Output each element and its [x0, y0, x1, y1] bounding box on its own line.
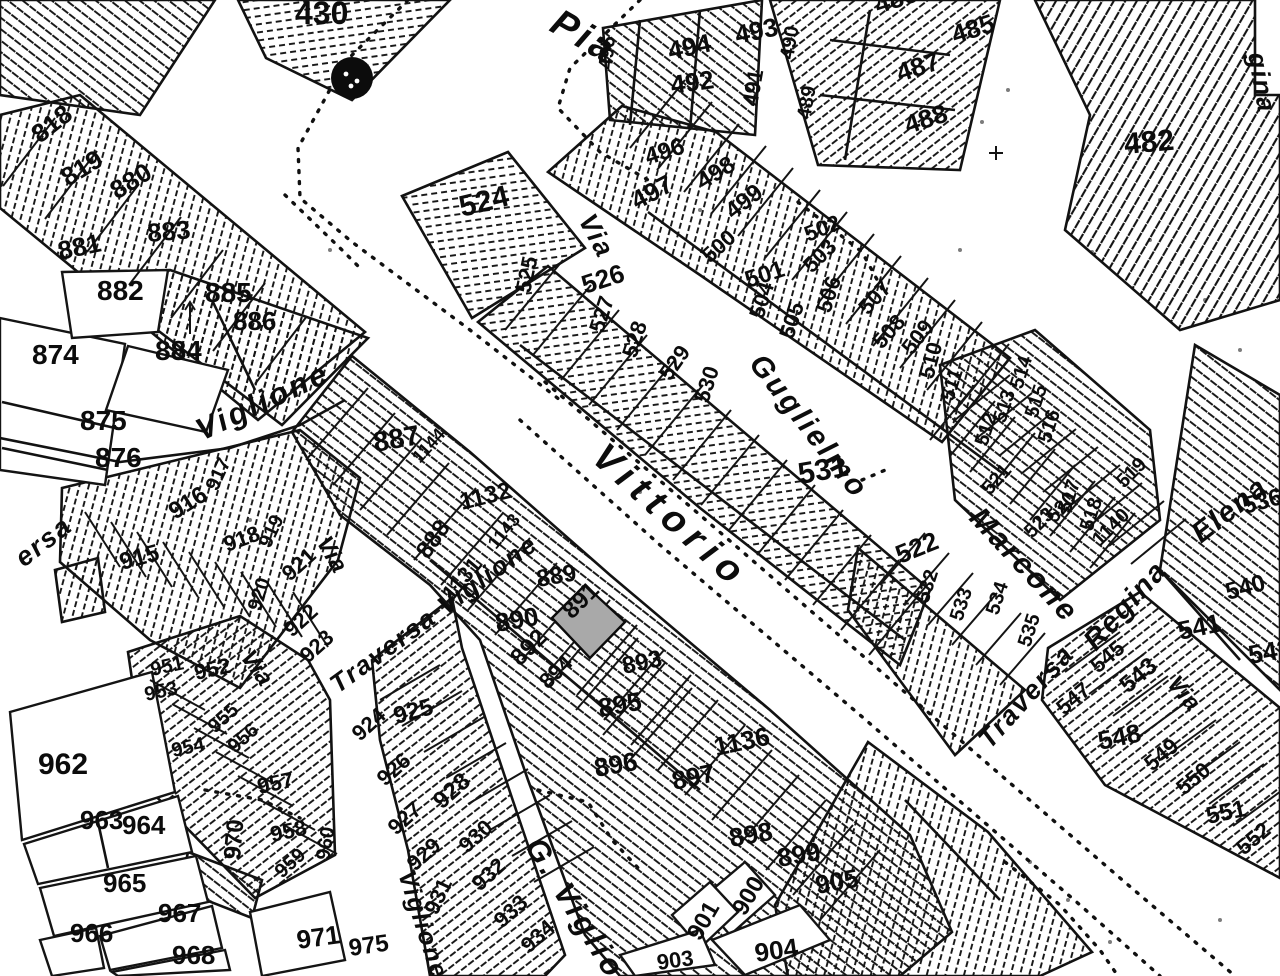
cross-mark-icon	[989, 146, 1003, 160]
parcel-label-962: 962	[38, 748, 88, 781]
paper-speck	[468, 698, 472, 702]
paper-speck	[1066, 898, 1070, 902]
parcel-label-963: 963	[80, 805, 123, 835]
paper-speck	[958, 248, 962, 252]
parcel-label-967: 967	[158, 898, 201, 928]
parcel-label-875: 875	[80, 405, 127, 436]
parcel-label-886: 886	[233, 306, 276, 336]
paper-speck	[1148, 238, 1152, 242]
map-canvas: 4308188198808818838828858868848748758764…	[0, 0, 1280, 976]
parcel-label-882: 882	[97, 275, 144, 306]
dotted-line	[285, 195, 360, 268]
paper-speck	[980, 120, 984, 124]
parcel-label-541: 541	[1175, 608, 1224, 646]
cadastral-map-page: 4308188198808818838828858868848748758764…	[0, 0, 1280, 976]
parcel-label-876: 876	[95, 442, 142, 473]
paper-speck	[1090, 250, 1094, 254]
parcel-label-903: 903	[655, 945, 695, 975]
tree-symbol-texture	[344, 72, 349, 77]
paper-speck	[1006, 88, 1010, 92]
parcel-label-966: 966	[70, 918, 113, 948]
hatched-parcel-block	[0, 0, 215, 115]
parcel-label-874: 874	[32, 339, 79, 370]
parcel-label-532: 532	[912, 567, 943, 606]
paper-speck	[1238, 348, 1242, 352]
parcel-label-430: 430	[295, 0, 348, 31]
tree-symbol-texture	[349, 84, 354, 89]
parcel-label-530: 530	[689, 363, 724, 406]
parcel-label-960: 960	[312, 825, 339, 862]
paper-speck	[1158, 198, 1162, 202]
parcel-label-970: 970	[219, 818, 249, 860]
parcel-label-884: 884	[155, 335, 202, 366]
parcel-label-491: 491	[737, 67, 768, 108]
parcel-label-522: 522	[891, 525, 942, 569]
parcel-label-534: 534	[982, 578, 1014, 617]
parcel-label-964: 964	[122, 810, 166, 840]
parcel-label-533: 533	[946, 585, 977, 624]
paper-speck	[698, 208, 702, 212]
parcel-label-965: 965	[103, 868, 146, 898]
paper-speck	[328, 248, 332, 252]
paper-speck	[1218, 918, 1222, 922]
parcel-label-904: 904	[753, 932, 801, 968]
paper-speck	[1203, 298, 1207, 302]
parcel-label-482: 482	[1123, 124, 1176, 161]
parcel-label-883: 883	[146, 214, 192, 248]
paper-speck	[1108, 940, 1112, 944]
paper-speck	[1028, 860, 1032, 864]
hatched-parcel-block	[1035, 0, 1280, 330]
parcel-label-885: 885	[205, 277, 252, 308]
hatched-parcel-block	[55, 558, 105, 622]
parcel-label-492: 492	[669, 64, 716, 100]
parcel-label-526: 526	[578, 258, 629, 300]
tree-symbol-icon	[331, 57, 373, 99]
paper-speck	[1180, 260, 1184, 264]
tree-symbol-texture	[355, 79, 360, 84]
parcel-label-968: 968	[172, 940, 215, 970]
parcel-label-975: 975	[347, 930, 390, 962]
parcel-label-971: 971	[295, 919, 342, 955]
